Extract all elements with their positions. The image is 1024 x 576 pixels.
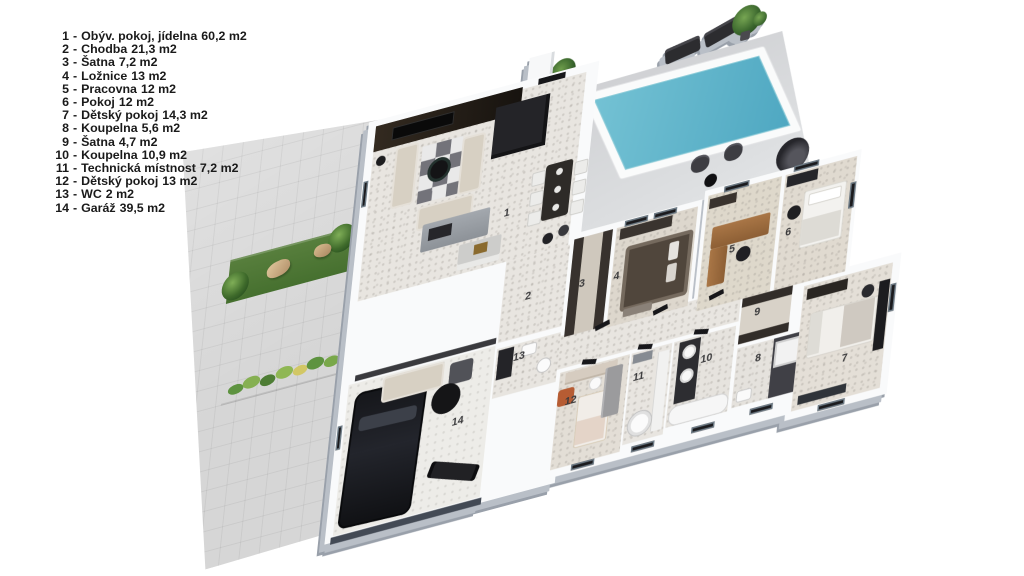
plate-icon [554, 185, 561, 194]
pillow-icon [666, 262, 678, 283]
gym-bench [430, 462, 477, 481]
legend-row: 9-Šatna4,7 m2 [44, 136, 247, 149]
legend-area: 4,7 m2 [119, 136, 158, 149]
car-windshield [358, 404, 418, 431]
legend-sep: - [69, 136, 81, 149]
plate-icon [556, 167, 563, 176]
legend: 1-Obýv. pokoj, jídelna60,2 m2 2-Chodba21… [44, 30, 247, 215]
legend-num: 8 [44, 122, 69, 135]
legend-area: 60,2 m2 [201, 30, 246, 43]
legend-num: 4 [44, 70, 69, 83]
legend-row: 8-Koupelna5,6 m2 [44, 122, 247, 135]
shrub-icon [323, 354, 340, 369]
legend-area: 5,6 m2 [142, 122, 181, 135]
legend-sep: - [69, 56, 81, 69]
legend-sep: - [69, 188, 81, 201]
shrub-icon [227, 382, 244, 396]
floorplan-render: 1-Obýv. pokoj, jídelna60,2 m2 2-Chodba21… [0, 0, 1024, 576]
legend-name: Šatna [81, 136, 115, 149]
blanket [574, 414, 606, 446]
legend-row: 13-WC2 m2 [44, 188, 247, 201]
pillow-icon [808, 185, 842, 206]
pillow-icon [668, 240, 680, 261]
legend-row: 3-Šatna7,2 m2 [44, 56, 247, 69]
shrub-icon [242, 374, 261, 391]
legend-area: 7,2 m2 [200, 162, 239, 175]
shrub-icon [275, 364, 294, 381]
legend-num: 3 [44, 56, 69, 69]
legend-name: Šatna [81, 56, 115, 69]
legend-row: 14-Garáž39,5 m2 [44, 202, 247, 215]
legend-num: 13 [44, 188, 69, 201]
legend-name: Ložnice [81, 70, 127, 83]
plate-icon [552, 203, 559, 212]
legend-sep: - [69, 70, 81, 83]
legend-area: 39,5 m2 [120, 202, 165, 215]
legend-area: 13 m2 [162, 175, 197, 188]
door-icon [638, 344, 653, 350]
legend-sep: - [69, 122, 81, 135]
door-icon [581, 359, 596, 365]
legend-row: 4-Ložnice13 m2 [44, 70, 247, 83]
legend-num: 14 [44, 202, 69, 215]
legend-name: Koupelna [81, 122, 137, 135]
legend-name: WC [81, 188, 102, 201]
legend-area: 2 m2 [106, 188, 134, 201]
legend-area: 13 m2 [131, 70, 166, 83]
shrub-icon [259, 373, 276, 388]
door-icon [694, 329, 709, 335]
legend-name: Garáž [81, 202, 115, 215]
legend-num: 9 [44, 136, 69, 149]
legend-sep: - [69, 202, 81, 215]
legend-area: 7,2 m2 [119, 56, 158, 69]
shrub-icon [292, 363, 308, 377]
blanket [840, 297, 875, 347]
pillow-icon [807, 311, 823, 356]
plant-pot [740, 30, 751, 42]
